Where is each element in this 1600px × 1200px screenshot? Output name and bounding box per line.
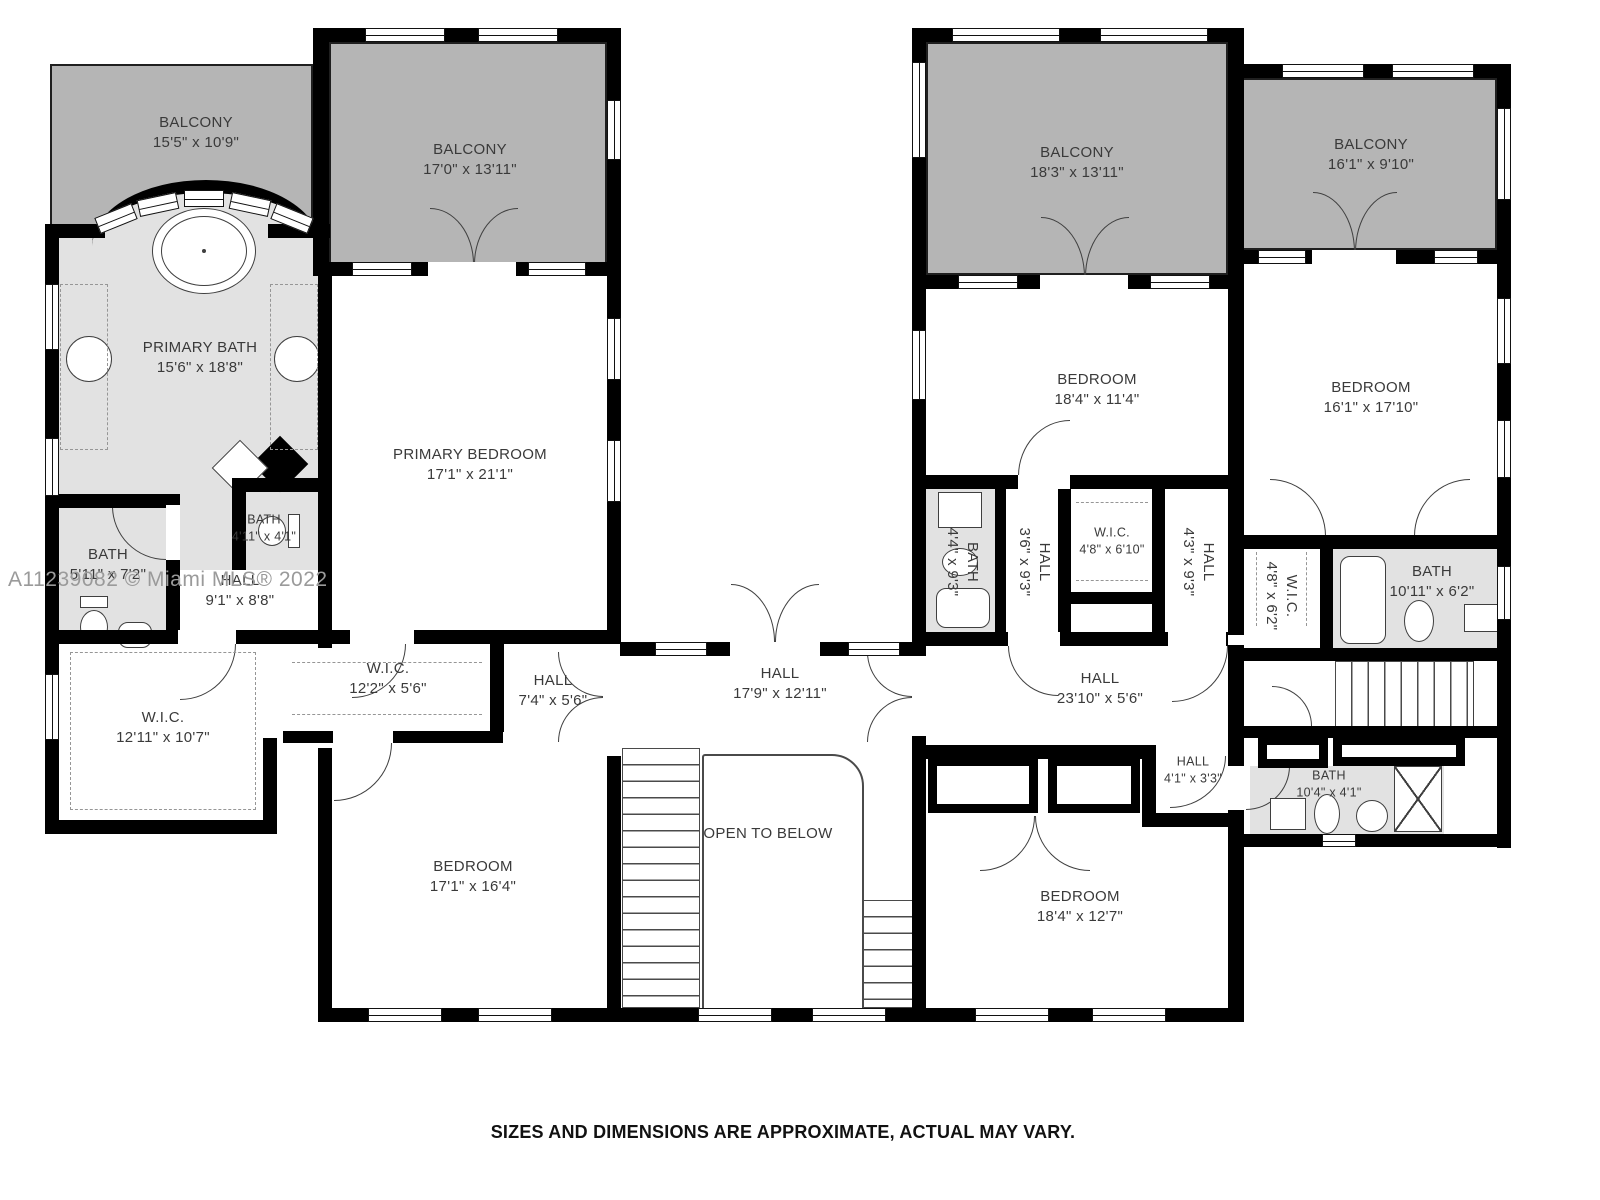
- fixture-ellipse: [1404, 600, 1434, 642]
- wall: [1242, 648, 1510, 661]
- room-name: BEDROOM: [1037, 887, 1123, 907]
- closet: [1048, 757, 1140, 813]
- window: [1100, 28, 1208, 42]
- dashed-detail: [1306, 552, 1307, 626]
- wall: [1064, 592, 1165, 604]
- window: [1282, 64, 1364, 78]
- wall: [1242, 535, 1497, 549]
- window: [478, 1008, 552, 1022]
- room-label-balcony-top-left: BALCONY15'5" x 10'9": [153, 113, 239, 153]
- room-dimensions: 4'11" x 4'1": [232, 528, 296, 545]
- window: [952, 28, 1060, 42]
- room-name: W.I.C.: [116, 708, 210, 728]
- fixture-rect: [80, 596, 108, 608]
- window: [958, 275, 1018, 289]
- room-name: BATH: [1296, 768, 1361, 785]
- room-label-primary-bath: PRIMARY BATH15'6" x 18'8": [143, 338, 257, 378]
- room-dimensions: 16'1" x 9'10": [1328, 155, 1414, 175]
- window: [352, 262, 412, 276]
- room-label-bath-4-4: BATH4'4" x 9'3": [942, 528, 982, 597]
- room-label-bedroom-sw: BEDROOM17'1" x 16'4": [430, 857, 516, 897]
- wall: [263, 738, 277, 834]
- window: [607, 440, 621, 502]
- room-label-hall-3-6: HALL3'6" x 9'3": [1014, 528, 1054, 597]
- room-dimensions: 18'3" x 13'11": [1030, 163, 1124, 183]
- door-gap: [178, 630, 236, 644]
- room-dimensions: 10'11" x 6'2": [1389, 582, 1474, 602]
- door-gap: [350, 630, 414, 644]
- door-gap: [1228, 766, 1244, 810]
- room-dimensions: 4'8" x 6'2": [1261, 562, 1281, 631]
- wall: [1242, 834, 1510, 847]
- wall: [1228, 263, 1244, 488]
- room-name: BEDROOM: [430, 857, 516, 877]
- wall: [283, 731, 503, 743]
- window: [655, 642, 707, 656]
- fixture-rect: [938, 492, 982, 528]
- room-label-bedroom-ne: BEDROOM18'4" x 11'4": [1054, 370, 1139, 410]
- room-label-bath-10-4: BATH10'4" x 4'1": [1296, 768, 1361, 801]
- dashed-detail: [60, 284, 108, 450]
- fixture-dot: [202, 249, 206, 253]
- room-name: BALCONY: [153, 113, 239, 133]
- window: [1497, 420, 1511, 478]
- room-label-hall-7-4: HALL7'4" x 5'6": [519, 671, 588, 711]
- room-dimensions: 10'4" x 4'1": [1296, 784, 1361, 801]
- room-name: HALL: [1198, 528, 1218, 597]
- room-name: HALL: [1164, 754, 1222, 771]
- window: [607, 318, 621, 380]
- room-dimensions: 15'5" x 10'9": [153, 133, 239, 153]
- room-dimensions: 23'10" x 5'6": [1057, 689, 1143, 709]
- fixture-rect: [1270, 798, 1306, 830]
- room-label-hall-4-1: HALL4'1" x 3'3": [1164, 754, 1222, 787]
- room-label-wic-4-8-6-2: W.I.C.4'8" x 6'2": [1261, 562, 1301, 631]
- wall: [607, 756, 621, 1022]
- staircase: [1335, 661, 1475, 727]
- room-name: W.I.C.: [1281, 562, 1301, 631]
- window: [45, 438, 59, 496]
- room-name: BATH: [70, 545, 146, 565]
- room-name: HALL: [733, 664, 827, 684]
- wall: [1320, 549, 1333, 648]
- door-gap: [166, 505, 180, 560]
- window: [1092, 1008, 1166, 1022]
- closet: [928, 757, 1038, 813]
- room-name: BEDROOM: [1324, 378, 1419, 398]
- window: [1497, 298, 1511, 364]
- wall: [313, 28, 329, 276]
- closet: [1258, 736, 1328, 768]
- room-dimensions: 3'6" x 9'3": [1014, 528, 1034, 597]
- room-name: W.I.C.: [349, 659, 427, 679]
- wall: [1242, 726, 1510, 738]
- room-dimensions: 4'8" x 6'10": [1079, 541, 1144, 558]
- room-dimensions: 18'4" x 12'7": [1037, 907, 1123, 927]
- wall: [1058, 480, 1071, 632]
- room-label-hall-4-3: HALL4'3" x 9'3": [1178, 528, 1218, 597]
- room-label-wic-12-2: W.I.C.12'2" x 5'6": [349, 659, 427, 699]
- wall: [232, 478, 332, 492]
- door-gap: [1008, 632, 1060, 646]
- window: [1150, 275, 1210, 289]
- window: [1497, 566, 1511, 620]
- room-dimensions: 4'3" x 9'3": [1178, 528, 1198, 597]
- room-dimensions: 18'4" x 11'4": [1054, 390, 1139, 410]
- window: [1258, 250, 1306, 264]
- bay-window: [184, 190, 224, 207]
- fixture-rect: [1464, 604, 1498, 632]
- door-arc: [731, 584, 775, 642]
- room-dimensions: 17'1" x 16'4": [430, 877, 516, 897]
- room-label-wic-4-8-6-10: W.I.C.4'8" x 6'10": [1079, 525, 1144, 558]
- room-name: HALL: [1057, 669, 1143, 689]
- wall: [995, 489, 1006, 632]
- room-dimensions: 17'9" x 12'11": [733, 684, 827, 704]
- fixture-circle: [1356, 800, 1388, 832]
- window: [45, 674, 59, 740]
- wall: [45, 224, 105, 238]
- room-name: BEDROOM: [1054, 370, 1139, 390]
- room-dimensions: 17'1" x 21'1": [393, 465, 547, 485]
- room-dimensions: 17'0" x 13'11": [423, 160, 517, 180]
- door-gap: [1312, 250, 1396, 264]
- mls-watermark: A11239082 © Miami MLS® 2022: [8, 568, 328, 592]
- room-name: BATH: [232, 512, 296, 529]
- room-name: BATH: [962, 528, 982, 597]
- window: [478, 28, 558, 42]
- dashed-detail: [270, 284, 318, 450]
- window: [607, 100, 621, 160]
- window: [368, 1008, 442, 1022]
- window: [812, 1008, 886, 1022]
- room-dimensions: 16'1" x 17'10": [1324, 398, 1419, 418]
- room-label-balcony-top-right: BALCONY18'3" x 13'11": [1030, 143, 1124, 183]
- room-label-balcony-top-mid: BALCONY17'0" x 13'11": [423, 140, 517, 180]
- room-name: HALL: [1034, 528, 1054, 597]
- window: [1434, 250, 1478, 264]
- door-gap: [1040, 275, 1128, 289]
- room-name: BALCONY: [1030, 143, 1124, 163]
- room-name: W.I.C.: [1079, 525, 1144, 542]
- window: [528, 262, 586, 276]
- door-gap: [333, 731, 393, 743]
- fixture-xbox: [1394, 766, 1442, 832]
- wall: [912, 475, 1244, 489]
- room-dimensions: 7'4" x 5'6": [519, 691, 588, 711]
- room-dimensions: 15'6" x 18'8": [143, 358, 257, 378]
- wall: [912, 736, 926, 1022]
- dashed-detail: [292, 714, 482, 715]
- room-name: BATH: [1389, 562, 1474, 582]
- room-label-hall-center: HALL17'9" x 12'11": [733, 664, 827, 704]
- room-name: HALL: [519, 671, 588, 691]
- floor-plan: A11239082 © Miami MLS® 2022 SIZES AND DI…: [0, 0, 1600, 1200]
- door-gap: [1168, 632, 1226, 646]
- window: [698, 1008, 772, 1022]
- room-name: PRIMARY BATH: [143, 338, 257, 358]
- window: [45, 284, 59, 350]
- room-dimensions: 4'1" x 3'3": [1164, 770, 1222, 787]
- wall: [912, 1008, 1242, 1022]
- wall: [912, 745, 1144, 759]
- room-name: OPEN TO BELOW: [703, 824, 832, 844]
- window: [912, 330, 926, 400]
- wall: [1142, 745, 1156, 827]
- door-arc: [1272, 686, 1312, 726]
- wall: [490, 644, 504, 732]
- wall: [45, 820, 277, 834]
- room-label-balcony-far-right: BALCONY16'1" x 9'10": [1328, 135, 1414, 175]
- room-label-bedroom-east: BEDROOM16'1" x 17'10": [1324, 378, 1419, 418]
- window: [1497, 108, 1511, 200]
- room-label-bath-10-11: BATH10'11" x 6'2": [1389, 562, 1474, 602]
- door-gap: [1018, 475, 1070, 489]
- window: [1322, 834, 1356, 847]
- room-label-wic-12-11: W.I.C.12'11" x 10'7": [116, 708, 210, 748]
- room-name: BALCONY: [1328, 135, 1414, 155]
- wall: [318, 1008, 621, 1022]
- open-to-below-outline: [702, 754, 864, 1016]
- door-gap: [428, 262, 516, 276]
- disclaimer-text: SIZES AND DIMENSIONS ARE APPROXIMATE, AC…: [0, 1122, 1566, 1143]
- wall: [45, 630, 620, 644]
- window: [365, 28, 445, 42]
- dashed-detail: [1076, 580, 1148, 581]
- window: [848, 642, 900, 656]
- window: [912, 62, 926, 158]
- room-dimensions: 12'2" x 5'6": [349, 679, 427, 699]
- staircase: [862, 900, 917, 1008]
- door-arc: [775, 584, 819, 642]
- room-label-bedroom-se: BEDROOM18'4" x 12'7": [1037, 887, 1123, 927]
- room-label-hall-east: HALL23'10" x 5'6": [1057, 669, 1143, 709]
- room-label-bath-4-11: BATH4'11" x 4'1": [232, 512, 296, 545]
- fixture-rrect: [1340, 556, 1386, 644]
- room-name: PRIMARY BEDROOM: [393, 445, 547, 465]
- room-label-primary-bedroom: PRIMARY BEDROOM17'1" x 21'1": [393, 445, 547, 485]
- window: [1392, 64, 1474, 78]
- dashed-detail: [1076, 502, 1148, 503]
- wall: [318, 748, 332, 1022]
- room-dimensions: 4'4" x 9'3": [942, 528, 962, 597]
- wall: [45, 494, 180, 508]
- room-name: BALCONY: [423, 140, 517, 160]
- room-dimensions: 12'11" x 10'7": [116, 728, 210, 748]
- staircase: [622, 748, 700, 1008]
- dashed-detail: [1256, 552, 1257, 626]
- window: [975, 1008, 1049, 1022]
- closet: [1333, 736, 1465, 766]
- room-label-open-to-below: OPEN TO BELOW: [703, 824, 832, 844]
- wall: [1228, 475, 1244, 635]
- room-dimensions: 9'1" x 8'8": [206, 591, 275, 611]
- door-gap: [730, 642, 820, 656]
- wall: [1152, 480, 1165, 632]
